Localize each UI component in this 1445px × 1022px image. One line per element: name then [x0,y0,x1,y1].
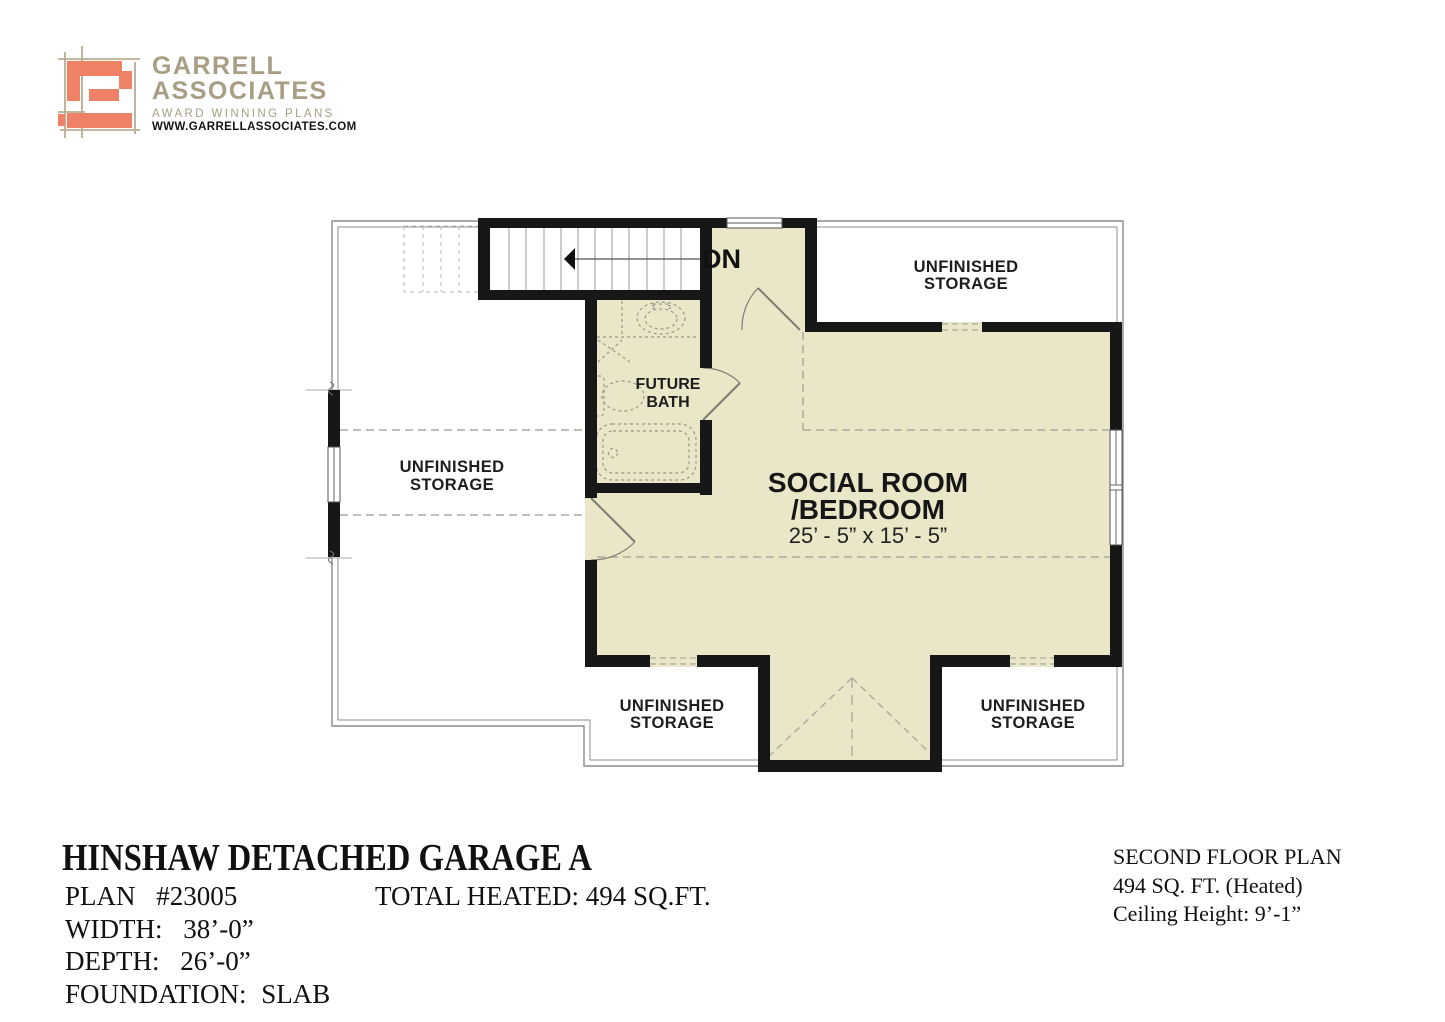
depth-value: 26’-0” [180,945,250,978]
future-bath-label-line2: BATH [646,394,689,411]
floor-info-line1: SECOND FLOOR PLAN [1113,843,1342,872]
foundation-label: FOUNDATION: [65,978,247,1011]
foundation-value: SLAB [261,978,330,1011]
bottom-left-storage-label-line1: UNFINISHED [620,697,725,715]
top-right-storage-label-line1: UNFINISHED [914,258,1019,276]
left-storage-label-line1: UNFINISHED [400,458,505,476]
bottom-left-storage-label-line2: STORAGE [630,714,714,732]
left-storage-label-line2: STORAGE [410,476,494,494]
social-room-window [1110,430,1122,545]
landing-window [727,218,782,228]
foundation-row: FOUNDATION: SLAB [65,978,330,1011]
bottom-right-storage-label-line2: STORAGE [991,714,1075,732]
stair-dn-label: DN [702,244,741,274]
width-row: WIDTH: 38’-0” [65,913,330,946]
floor-info: SECOND FLOOR PLAN 494 SQ. FT. (Heated) C… [1113,843,1342,929]
social-room-dimensions: 25’ - 5” x 15’ - 5” [789,523,948,548]
floor-info-line3: Ceiling Height: 9’-1” [1113,900,1342,929]
plan-number-row: PLAN #23005 [65,880,330,913]
plan-details: PLAN #23005 WIDTH: 38’-0” DEPTH: 26’-0” … [65,880,330,1010]
social-room-label-line2: /BEDROOM [791,494,945,525]
depth-label: DEPTH: [65,945,160,978]
floor-info-line2: 494 SQ. FT. (Heated) [1113,872,1342,901]
bottom-right-storage-label-line1: UNFINISHED [981,697,1086,715]
plan-number-label: PLAN [65,880,136,913]
total-heated: TOTAL HEATED: 494 SQ.FT. [375,880,711,913]
plan-number-value: #23005 [156,880,237,913]
left-wall-window [328,447,340,502]
width-label: WIDTH: [65,913,162,946]
page: GARRELL ASSOCIATES AWARD WINNING PLANS W… [0,0,1445,1022]
top-right-storage-label-line2: STORAGE [924,275,1008,293]
future-bath-label-line1: FUTURE [636,376,701,393]
plan-title: HINSHAW DETACHED GARAGE A [62,836,592,880]
depth-row: DEPTH: 26’-0” [65,945,330,978]
width-value: 38’-0” [183,913,253,946]
